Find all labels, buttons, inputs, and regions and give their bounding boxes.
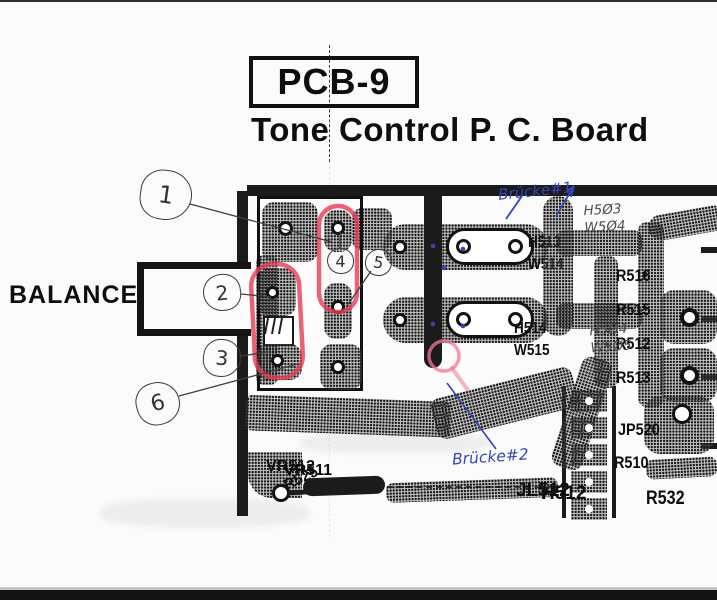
silk-w515: W515 xyxy=(514,342,556,360)
handwriting-bruecke2: Brücke#2 xyxy=(451,445,529,468)
silk-r510: R510 xyxy=(614,453,655,473)
header-rail-right xyxy=(612,386,616,518)
pad xyxy=(456,312,471,327)
trace-capsule-vertical xyxy=(543,196,573,336)
pencil-note-2: H5Ø4 W5Ø5 xyxy=(589,321,632,358)
pad xyxy=(456,239,471,254)
header-pin-hole xyxy=(585,505,593,513)
silk-r515: R515 xyxy=(616,300,657,320)
pad xyxy=(266,286,279,299)
board-code-box: PCB-9 xyxy=(249,56,419,108)
scan-bottom-edge xyxy=(0,590,717,600)
pink-marker-stroke xyxy=(452,368,467,389)
header-pin-hole xyxy=(585,424,593,432)
pad xyxy=(672,404,692,424)
board-top-border xyxy=(247,185,717,196)
edge-finger xyxy=(701,247,717,253)
pencil-note-1: H5Ø3 W5Ø4 xyxy=(583,201,626,237)
trace-wide-band xyxy=(429,365,580,441)
pad xyxy=(680,366,699,385)
erased-pencil-smudge xyxy=(100,498,310,528)
pad xyxy=(331,300,345,314)
page-title: Tone Control P. C. Board xyxy=(251,111,649,149)
pad xyxy=(393,240,407,254)
pad xyxy=(331,221,345,235)
silk-r513: R513 xyxy=(616,368,657,388)
pad xyxy=(508,312,523,327)
silk-jp520: JP520 xyxy=(618,420,667,440)
trace-diagonal xyxy=(646,203,717,242)
pad-slot xyxy=(263,316,294,346)
header-pin-hole xyxy=(585,397,593,405)
pencil-note-1-line2: W5Ø4 xyxy=(584,218,626,237)
header-pin-hole xyxy=(585,451,593,459)
silk-h512: H512 xyxy=(541,483,586,505)
board-code: PCB-9 xyxy=(277,61,390,103)
scan-top-edge xyxy=(0,0,717,2)
pin-callout-1: 1 xyxy=(137,167,195,224)
pad xyxy=(331,360,345,374)
silk-vr511: VR511 xyxy=(284,462,332,480)
pencil-note-2-line2: W5Ø5 xyxy=(590,337,632,357)
silk-r516: R516 xyxy=(616,266,657,286)
pad xyxy=(680,308,699,327)
pad xyxy=(508,239,523,254)
pin-callout-4: 4 xyxy=(327,248,354,274)
pad xyxy=(278,221,293,236)
silk-r532: R532 xyxy=(646,488,691,510)
jumper-bar xyxy=(424,188,442,368)
pin-callout-6: 6 xyxy=(131,377,185,430)
pad xyxy=(393,313,407,327)
trace-wide-band xyxy=(245,394,451,437)
balance-label: BALANCE xyxy=(9,281,138,310)
pad xyxy=(271,354,284,367)
pencil-note-1-line1: H5Ø3 xyxy=(583,201,625,220)
trace-stub xyxy=(646,456,717,480)
board-left-border-upper xyxy=(237,191,248,264)
